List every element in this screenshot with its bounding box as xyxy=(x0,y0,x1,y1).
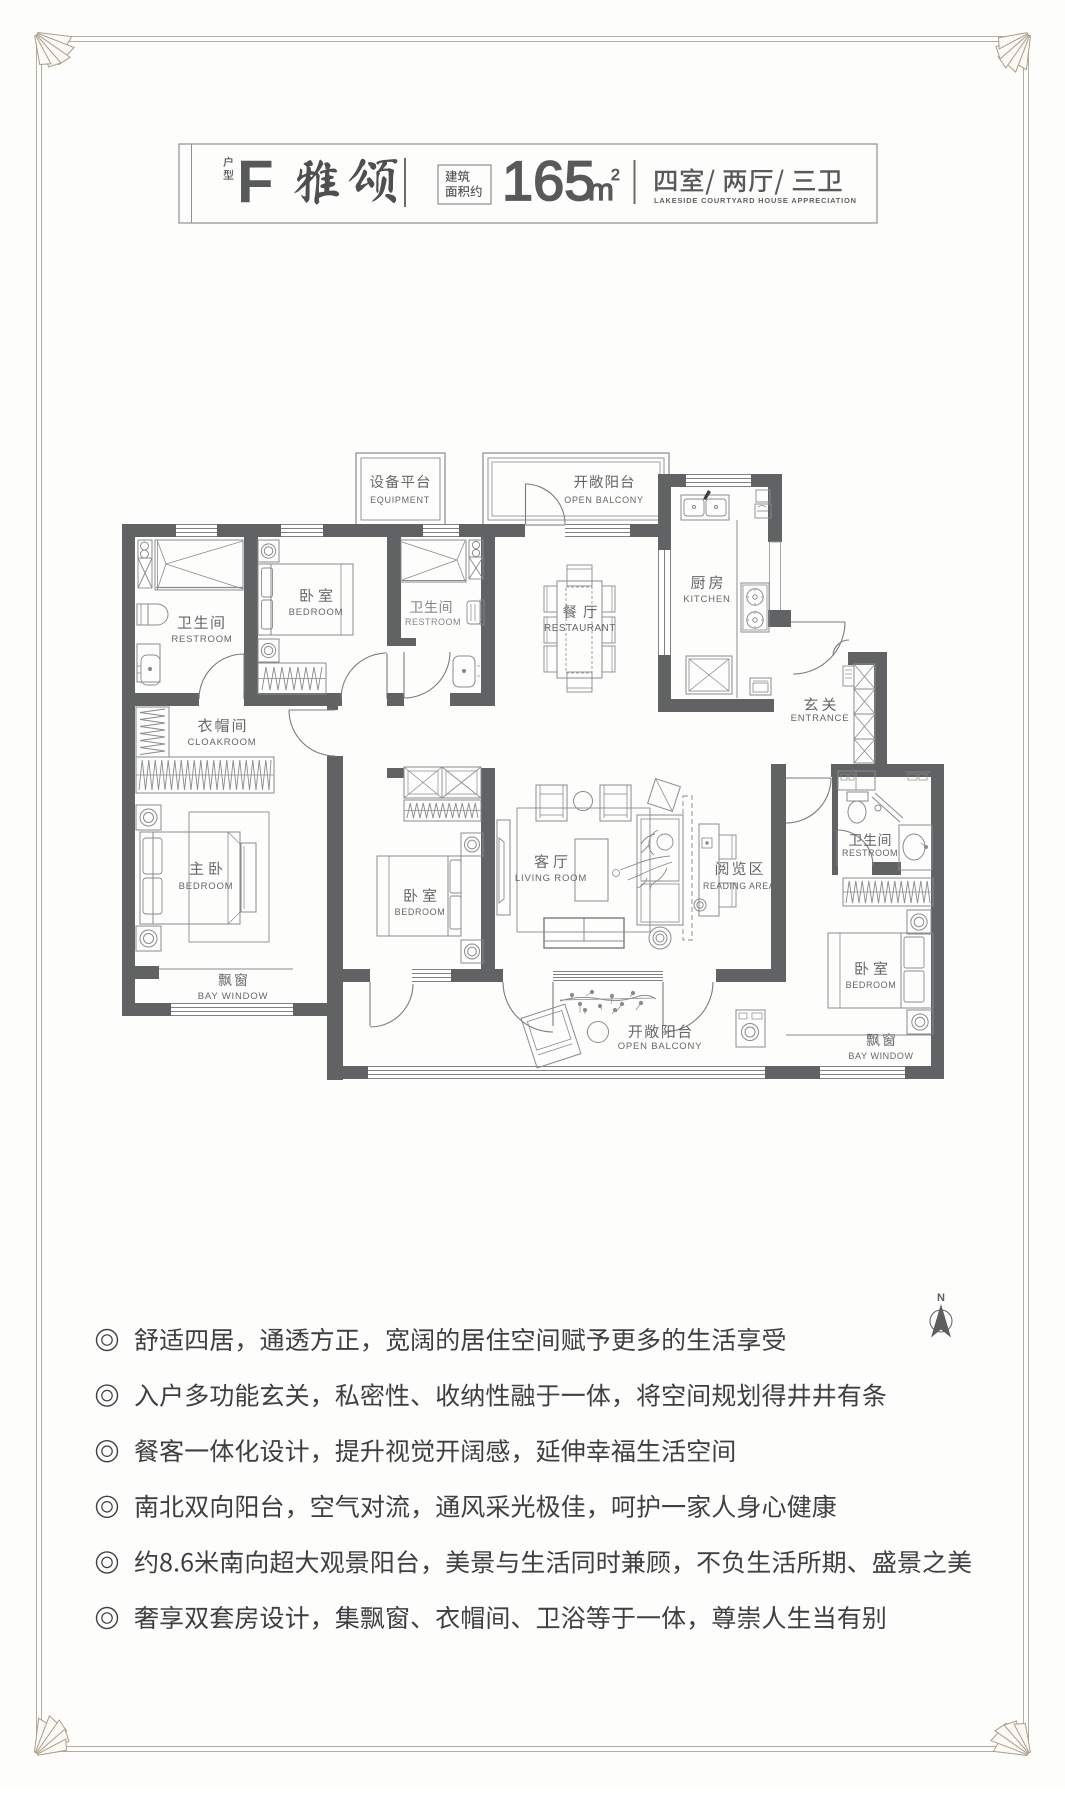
svg-text:OPEN BALCONY: OPEN BALCONY xyxy=(618,1041,703,1052)
svg-text:BEDROOM: BEDROOM xyxy=(289,607,344,618)
svg-text:BEDROOM: BEDROOM xyxy=(846,980,897,990)
svg-text:RESTROOM: RESTROOM xyxy=(842,848,898,858)
svg-text:CLOAKROOM: CLOAKROOM xyxy=(188,737,257,748)
svg-text:ENTRANCE: ENTRANCE xyxy=(791,713,850,724)
svg-text:BEDROOM: BEDROOM xyxy=(179,881,234,892)
svg-text:BAY WINDOW: BAY WINDOW xyxy=(848,1051,913,1061)
svg-text:2: 2 xyxy=(611,167,620,184)
svg-text:F: F xyxy=(237,148,274,215)
svg-text:READING AREA: READING AREA xyxy=(703,881,775,891)
svg-text:RESTROOM: RESTROOM xyxy=(171,634,232,645)
svg-text:165: 165 xyxy=(502,149,595,212)
svg-text:KITCHEN: KITCHEN xyxy=(683,594,730,605)
svg-text:EQUIPMENT: EQUIPMENT xyxy=(370,495,430,505)
svg-text:BEDROOM: BEDROOM xyxy=(395,907,446,917)
svg-text:m: m xyxy=(588,172,614,207)
svg-text:RESTAURANT: RESTAURANT xyxy=(544,623,616,634)
svg-text:BAY WINDOW: BAY WINDOW xyxy=(198,991,268,1002)
svg-text:N: N xyxy=(937,1292,945,1304)
svg-text:OPEN BALCONY: OPEN BALCONY xyxy=(564,495,643,505)
svg-text:LIVING ROOM: LIVING ROOM xyxy=(515,873,587,884)
svg-text:LAKESIDE COURTYARD HOUSE APPRE: LAKESIDE COURTYARD HOUSE APPRECIATION xyxy=(654,196,857,205)
svg-text:RESTROOM: RESTROOM xyxy=(405,617,461,627)
